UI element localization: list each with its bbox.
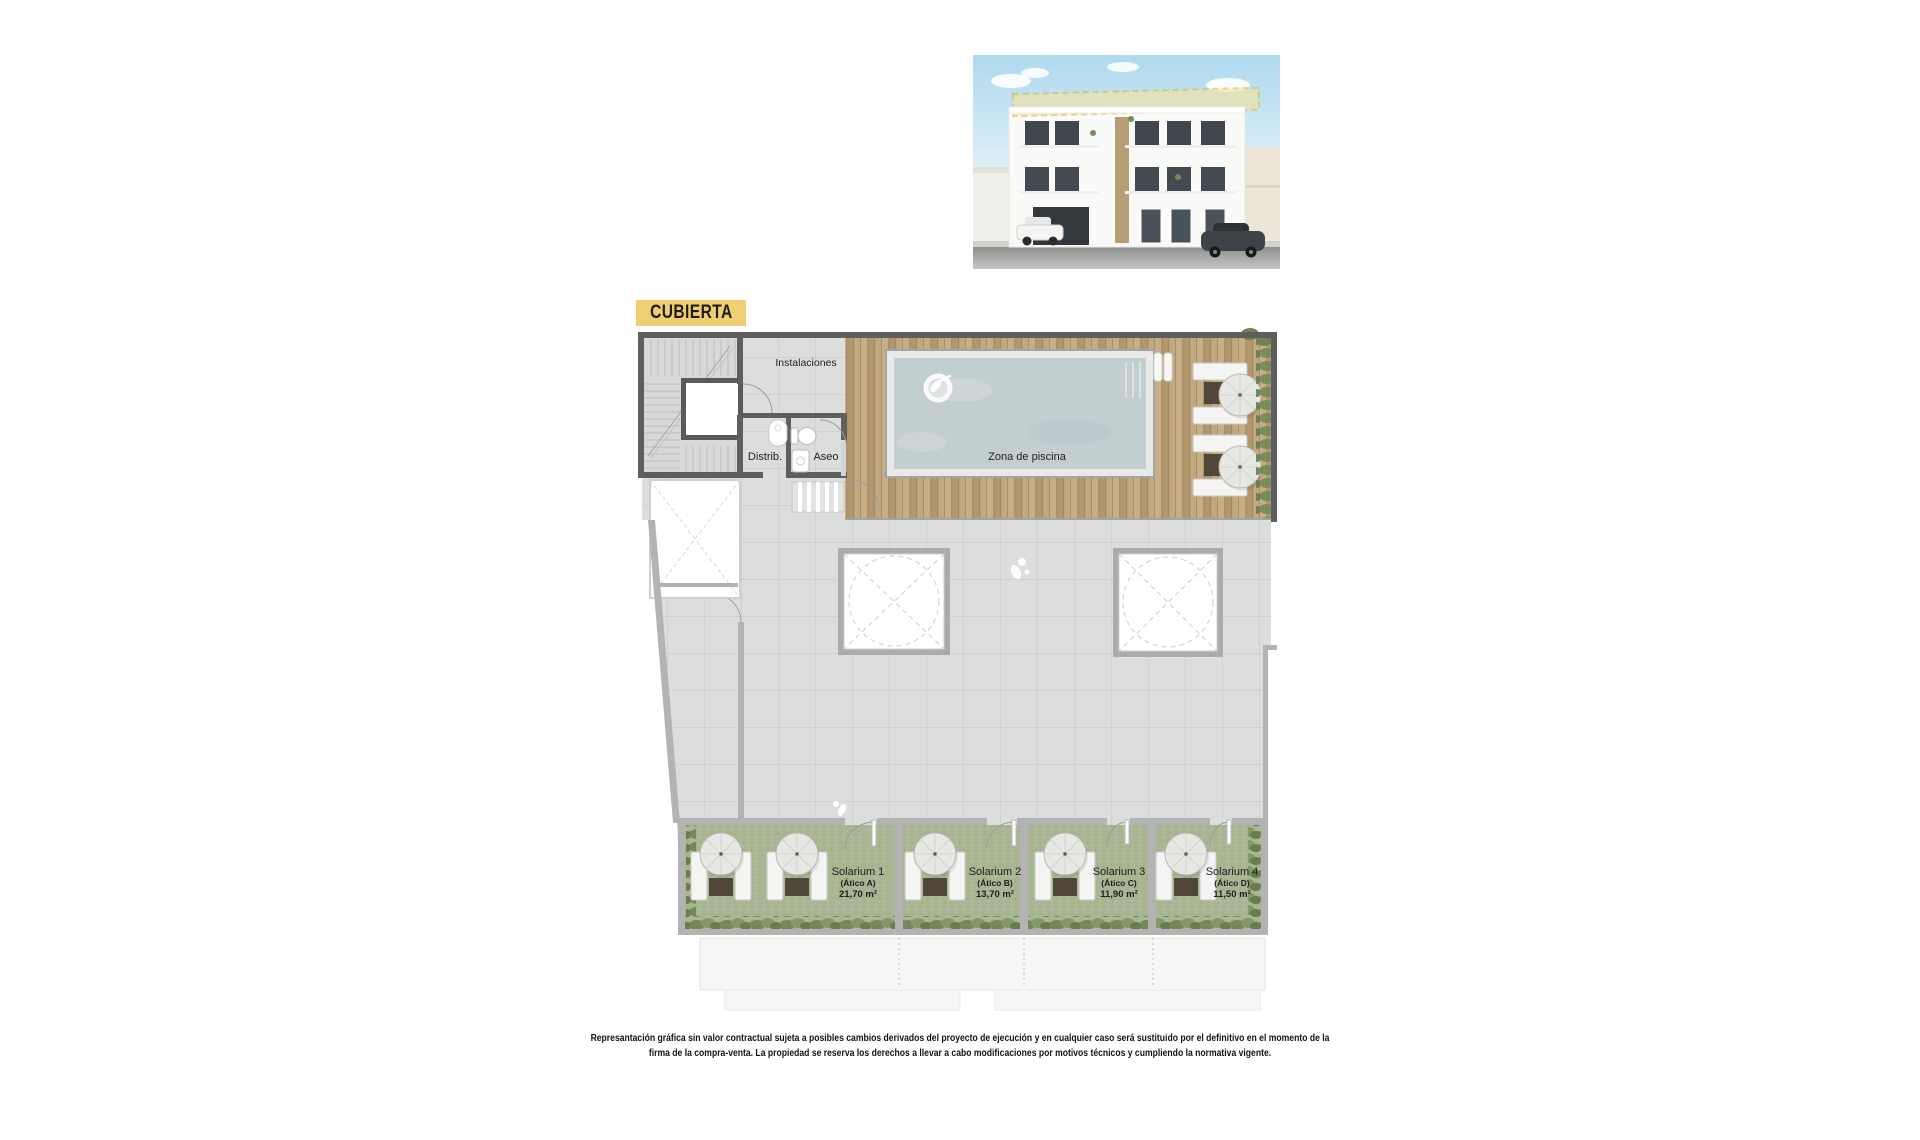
svg-text:(Ático A): (Ático A) bbox=[840, 878, 875, 888]
svg-text:(Ático C): (Ático C) bbox=[1101, 878, 1137, 888]
svg-text:Solarium 3: Solarium 3 bbox=[1093, 866, 1146, 878]
svg-text:11,90 m²: 11,90 m² bbox=[1100, 889, 1138, 900]
pool-zone-label: Zona de piscina bbox=[988, 451, 1067, 463]
svg-text:Solarium 2: Solarium 2 bbox=[969, 866, 1022, 878]
deck-edge-planting bbox=[1256, 338, 1272, 518]
skylight bbox=[1113, 548, 1223, 657]
aseo-door-leaf bbox=[841, 442, 846, 476]
distrib-label: Distrib. bbox=[748, 451, 782, 463]
building-render-image bbox=[973, 55, 1280, 269]
svg-text:Solarium 4: Solarium 4 bbox=[1206, 866, 1259, 878]
disclaimer: Represantación gráfica sin valor contrac… bbox=[591, 1031, 1330, 1061]
toilet-icon bbox=[791, 428, 816, 445]
building-elevation bbox=[973, 55, 1280, 269]
plan-title: CUBIERTA bbox=[650, 302, 733, 324]
svg-text:13,70 m²: 13,70 m² bbox=[976, 889, 1014, 900]
skylight bbox=[838, 548, 950, 655]
disclaimer-line-2: firma de la compra-venta. La propiedad s… bbox=[591, 1046, 1330, 1061]
wood-accent-panel bbox=[1115, 117, 1129, 243]
sink-icon bbox=[792, 450, 809, 472]
pool-float-icon bbox=[926, 376, 950, 400]
ghost-floor-below bbox=[700, 938, 1265, 1010]
instalaciones-label: Instalaciones bbox=[775, 357, 836, 369]
page: { "badge": { "label": "CUBIERTA" }, "pla… bbox=[0, 0, 1920, 1140]
elevator bbox=[684, 381, 741, 438]
svg-text:11,50 m²: 11,50 m² bbox=[1213, 889, 1251, 900]
neighbor-building-left bbox=[973, 173, 1011, 249]
svg-text:Solarium 1: Solarium 1 bbox=[832, 866, 885, 878]
floor-plan: Zona de piscina bbox=[630, 320, 1290, 1020]
aseo-label: Aseo bbox=[813, 451, 838, 463]
void-hatch bbox=[650, 480, 740, 598]
svg-text:21,70 m²: 21,70 m² bbox=[839, 889, 877, 900]
roof-parapet bbox=[1009, 107, 1245, 113]
svg-text:(Ático D): (Ático D) bbox=[1214, 878, 1250, 888]
disclaimer-line-1: Represantación gráfica sin valor contrac… bbox=[591, 1031, 1330, 1046]
bench-louvers bbox=[792, 482, 844, 512]
water-heater-icon bbox=[769, 420, 787, 446]
plan-title-badge: CUBIERTA bbox=[636, 300, 746, 326]
svg-text:(Ático B): (Ático B) bbox=[977, 878, 1013, 888]
